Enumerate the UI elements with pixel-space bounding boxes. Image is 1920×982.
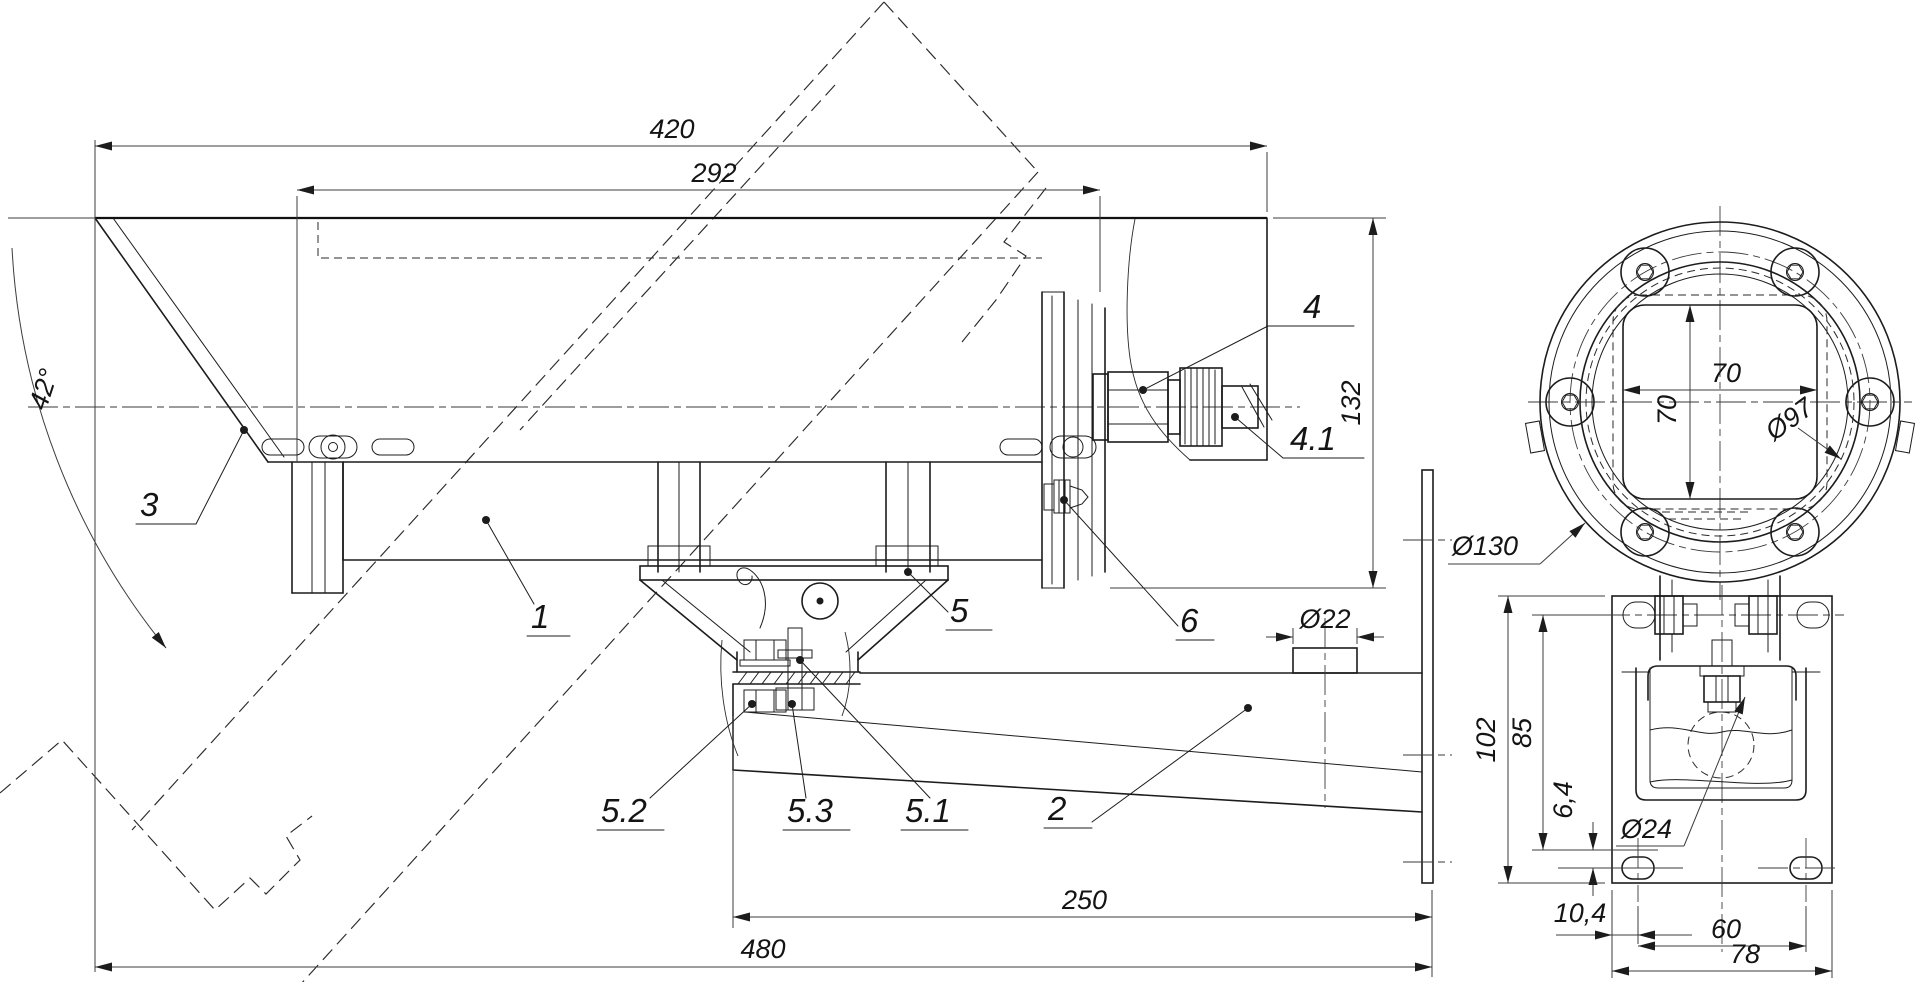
shield-slot [1000,439,1042,455]
part-label-sun-shield: 3 [140,486,159,523]
dim-plate-width: 78 [1730,939,1760,969]
dim-cable-gland-dia: Ø22 [1298,604,1350,634]
mount-plate-view: 102 85 6,4 Ø24 10,4 60 [1471,585,1844,978]
pivot-joint [733,568,860,712]
dim-shield-tilt-angle: 42° [23,365,64,413]
side-view: 420 292 42° 132 Ø22 250 480 3 [0,2,1452,982]
clamp-saddle [1622,668,1820,800]
dim-slot-edge-offset: 10,4 [1554,898,1607,928]
dim-slot-offset: 6,4 [1548,781,1578,819]
drawing-sheet: 420 292 42° 132 Ø22 250 480 3 [0,0,1920,982]
dim-housing-length: 420 [649,114,694,144]
sun-shield [95,218,1267,462]
pivot-stud-nut [776,688,814,710]
technical-drawing: 420 292 42° 132 Ø22 250 480 3 [0,0,1920,982]
dim-plate-height: 102 [1471,717,1501,762]
mounting-plate-side [1403,470,1452,883]
housing-body [292,462,1042,593]
cradle-bracket [640,546,948,672]
dim-window-height: 70 [1652,395,1682,425]
dim-rear-height: 132 [1336,380,1366,425]
part-label-pivot-stud: 5.1 [905,792,951,829]
dim-flange-dia: Ø130 [1451,531,1518,561]
front-view: 70 70 Ø97 Ø130 [1448,206,1914,600]
clamp-lever [737,568,765,628]
dim-bolt-to-slot: 85 [1507,717,1537,748]
part-label-connector-plug: 4.1 [1290,420,1336,457]
dim-clamp-hole-dia: Ø24 [1620,814,1672,844]
part-label-connector: 4 [1303,288,1321,325]
shield-slot [262,439,304,455]
clamp-pipe-hole [1688,712,1754,778]
shield-slot [372,439,414,455]
shield-screw-washer [309,436,357,458]
dim-shield-rear-length: 292 [690,158,736,188]
part-label-cradle: 5 [950,592,969,629]
dim-overall-length: 480 [740,934,785,964]
part-label-pivot-nut: 5.3 [787,792,834,829]
dim-window-width: 70 [1711,358,1741,388]
dim-arm-pivot-to-plate: 250 [1061,885,1107,915]
part-label-bracket-arm: 2 [1047,790,1066,827]
part-label-pivot-bolt: 5.2 [601,792,647,829]
mount-view-dimensions: 102 85 6,4 Ø24 10,4 60 [1471,596,1832,978]
side-view-dimensions: 420 292 42° 132 Ø22 250 480 [8,114,1432,977]
rear-plate-assembly [1042,218,1267,588]
ground-screw [1044,480,1088,513]
part-label-ground-screw: 6 [1180,602,1199,639]
bracket-arm [721,618,1422,812]
dim-bezel-dia: Ø97 [1759,391,1820,446]
shield-screw [321,435,345,459]
